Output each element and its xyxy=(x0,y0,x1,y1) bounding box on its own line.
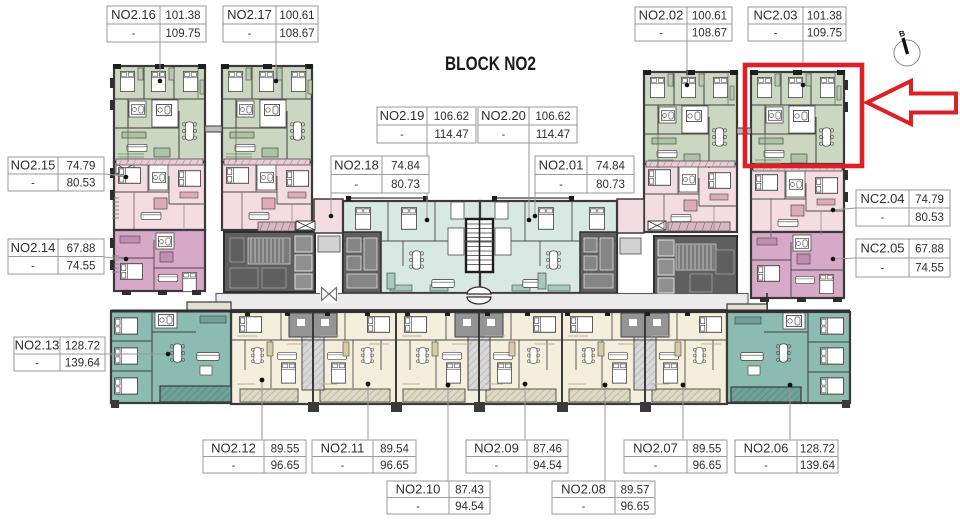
svg-text:114.47: 114.47 xyxy=(434,129,468,141)
svg-text:74.79: 74.79 xyxy=(67,161,96,173)
svg-text:128.72: 128.72 xyxy=(800,443,835,455)
svg-text:BLOCK NO2: BLOCK NO2 xyxy=(445,54,536,75)
svg-text:101.38: 101.38 xyxy=(807,11,842,23)
svg-text:NO2.11: NO2.11 xyxy=(321,440,365,455)
svg-text:74.55: 74.55 xyxy=(67,260,96,272)
svg-text:101.38: 101.38 xyxy=(165,10,200,22)
svg-text:139.64: 139.64 xyxy=(65,358,101,370)
svg-text:74.84: 74.84 xyxy=(596,160,625,172)
svg-text:NO2.18: NO2.18 xyxy=(334,157,379,172)
svg-text:-: - xyxy=(132,28,136,40)
svg-text:96.65: 96.65 xyxy=(693,460,722,472)
svg-text:89.57: 89.57 xyxy=(621,484,650,496)
svg-text:109.75: 109.75 xyxy=(807,28,842,40)
svg-text:NO2.10: NO2.10 xyxy=(396,481,441,496)
svg-text:-: - xyxy=(341,460,345,472)
svg-text:NO2.12: NO2.12 xyxy=(211,440,256,455)
svg-text:106.62: 106.62 xyxy=(535,111,570,123)
svg-text:-: - xyxy=(35,358,39,370)
svg-text:NC2.03: NC2.03 xyxy=(753,8,797,23)
svg-text:-: - xyxy=(232,460,236,472)
svg-text:-: - xyxy=(495,460,499,472)
svg-text:NO2.17: NO2.17 xyxy=(227,7,272,22)
svg-text:74.79: 74.79 xyxy=(915,194,944,206)
svg-text:80.73: 80.73 xyxy=(391,179,420,191)
svg-text:87.43: 87.43 xyxy=(455,484,484,496)
svg-text:96.65: 96.65 xyxy=(271,460,300,472)
svg-text:NO2.09: NO2.09 xyxy=(474,440,519,455)
svg-text:NO2.20: NO2.20 xyxy=(481,108,526,123)
svg-text:100.61: 100.61 xyxy=(692,11,727,23)
svg-text:NO2.13: NO2.13 xyxy=(15,338,60,353)
svg-text:139.64: 139.64 xyxy=(800,460,836,472)
svg-text:-: - xyxy=(31,260,35,272)
svg-text:NC2.04: NC2.04 xyxy=(860,191,904,206)
svg-text:NO2.01: NO2.01 xyxy=(539,157,584,172)
svg-text:-: - xyxy=(400,129,404,141)
svg-text:NO2.14: NO2.14 xyxy=(11,240,56,255)
svg-text:NO2.15: NO2.15 xyxy=(11,158,56,173)
svg-text:-: - xyxy=(881,263,885,275)
svg-text:NO2.06: NO2.06 xyxy=(744,440,789,455)
svg-text:96.65: 96.65 xyxy=(380,460,409,472)
svg-text:89.55: 89.55 xyxy=(271,443,300,455)
svg-text:NO2.07: NO2.07 xyxy=(633,440,678,455)
svg-text:NO2.02: NO2.02 xyxy=(639,8,684,23)
svg-text:-: - xyxy=(502,129,506,141)
svg-text:94.54: 94.54 xyxy=(533,460,562,472)
svg-text:-: - xyxy=(881,212,885,224)
svg-text:-: - xyxy=(416,501,420,513)
svg-text:-: - xyxy=(582,501,586,513)
svg-text:87.46: 87.46 xyxy=(533,443,562,455)
svg-text:-: - xyxy=(559,179,563,191)
svg-text:80.53: 80.53 xyxy=(915,212,944,224)
svg-text:NO2.08: NO2.08 xyxy=(561,481,606,496)
svg-text:-: - xyxy=(355,179,359,191)
svg-text:NO2.19: NO2.19 xyxy=(380,108,425,123)
svg-text:-: - xyxy=(659,28,663,40)
svg-text:B: B xyxy=(898,29,906,39)
svg-text:100.61: 100.61 xyxy=(279,10,314,22)
svg-text:89.54: 89.54 xyxy=(380,443,409,455)
svg-text:NO2.16: NO2.16 xyxy=(111,7,156,22)
svg-text:89.55: 89.55 xyxy=(693,443,722,455)
svg-text:114.47: 114.47 xyxy=(536,129,570,141)
svg-text:80.73: 80.73 xyxy=(596,179,625,191)
svg-text:108.67: 108.67 xyxy=(279,28,314,40)
svg-text:94.54: 94.54 xyxy=(455,501,484,513)
svg-text:NC2.05: NC2.05 xyxy=(860,241,904,256)
svg-text:-: - xyxy=(31,178,35,190)
svg-text:74.84: 74.84 xyxy=(391,160,420,172)
svg-text:67.88: 67.88 xyxy=(67,243,96,255)
svg-text:67.88: 67.88 xyxy=(915,244,944,256)
svg-text:-: - xyxy=(248,28,252,40)
svg-text:108.67: 108.67 xyxy=(692,28,727,40)
svg-text:-: - xyxy=(654,460,658,472)
svg-text:109.75: 109.75 xyxy=(165,28,200,40)
svg-text:80.53: 80.53 xyxy=(67,178,96,190)
svg-text:74.55: 74.55 xyxy=(915,263,944,275)
svg-text:-: - xyxy=(774,28,778,40)
svg-text:-: - xyxy=(764,460,768,472)
svg-text:128.72: 128.72 xyxy=(65,341,100,353)
svg-text:96.65: 96.65 xyxy=(621,501,650,513)
svg-text:106.62: 106.62 xyxy=(434,111,469,123)
